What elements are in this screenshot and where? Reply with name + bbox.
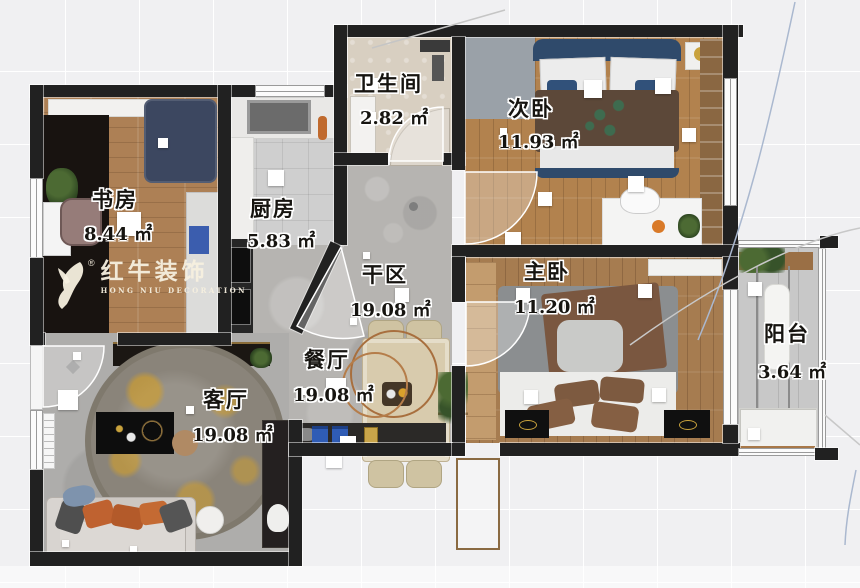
study-daybed [144, 99, 217, 183]
ceiling-light [268, 170, 284, 186]
lower-background-tiles [0, 566, 860, 588]
second-bedroom-area-label: 11.93 ㎡ [498, 128, 579, 154]
dry-area-floor [345, 165, 452, 245]
second-bedroom-desk-orange [652, 220, 665, 233]
master-bed-tray [557, 320, 623, 372]
wall-left-middle [30, 258, 43, 345]
study-blue-box [189, 226, 209, 254]
second-bedroom-desk-plant [678, 214, 700, 238]
ceiling-light [538, 192, 552, 206]
kitchen-figurine [318, 116, 327, 140]
living-area-label: 19.08 ㎡ [192, 421, 273, 447]
study-area-label: 8.44 ㎡ [84, 220, 152, 246]
brand-watermark: ® 红牛装饰 HONG NIU DECORATION [54, 260, 247, 310]
kitchen-area-label: 5.83 ㎡ [247, 227, 315, 253]
wall-entry-corner [452, 443, 465, 456]
wall-balcony-divider-top [723, 257, 738, 289]
master-bedroom-label: 主卧 [524, 256, 570, 286]
master-bedroom-area-label: 11.20 ㎡ [514, 293, 595, 319]
brand-name-en: HONG NIU DECORATION [101, 286, 247, 295]
balcony-sliding-door [723, 289, 738, 425]
wall-master-left-upper [452, 257, 465, 302]
balcony-plants [739, 247, 785, 273]
dining-chair-bottom-left [368, 460, 404, 488]
living-side-table [196, 506, 224, 534]
ceiling-light [652, 388, 666, 402]
living-radiator [43, 413, 55, 469]
living-door-gap [30, 345, 43, 410]
ceiling-light [584, 80, 602, 98]
bathroom-label: 卫生间 [354, 68, 423, 98]
kitchen-sink [247, 100, 311, 134]
second-bedroom-window [724, 78, 737, 206]
ceiling-light [58, 390, 78, 410]
bathroom-fixture [420, 40, 450, 52]
ceiling-light [638, 284, 652, 298]
kitchen-label: 厨房 [250, 193, 296, 223]
kitchen-window [255, 85, 325, 97]
wall-bathroom-bottom-left [334, 153, 388, 165]
ceiling-light [62, 540, 69, 547]
dry-area-area-label: 19.08 ㎡ [350, 296, 431, 322]
balcony-window-top [738, 240, 826, 248]
bull-logo-icon [54, 260, 88, 310]
wall-left-upper [30, 85, 43, 178]
ceiling-light [158, 138, 168, 148]
sideboard-blue-box-1 [312, 426, 328, 443]
wall-balcony-divider-bottom [723, 425, 738, 443]
bathroom-shower-head [432, 55, 444, 81]
ceiling-light [748, 282, 762, 296]
master-bed-pillow-2 [599, 376, 645, 404]
ceiling-light [186, 406, 194, 414]
balcony-area-label: 3.64 ㎡ [758, 358, 826, 384]
wall-balcony-corner-topright [820, 236, 838, 248]
ceiling-light [73, 352, 81, 360]
dry-area-label: 干区 [362, 259, 408, 289]
entry-door-leaf [456, 458, 500, 550]
balcony-window-bottom [738, 448, 818, 456]
balcony-window-right [818, 248, 826, 456]
master-nightstand-handle-left [519, 420, 537, 430]
wall-top-bathroom-bedroom [334, 25, 743, 37]
wall-dining-bottom [289, 443, 452, 456]
living-coffee-table [96, 412, 174, 454]
living-label: 客厅 [203, 384, 249, 414]
ceiling-light [655, 78, 671, 94]
ceiling-light [628, 176, 644, 192]
wall-bathroom-left [334, 25, 347, 245]
hall-floor-dot [409, 202, 418, 211]
study-label: 书房 [92, 184, 138, 214]
wall-living-right-stub [289, 420, 302, 566]
wall-living-bottom [30, 552, 302, 566]
dining-chair-bottom-right [406, 460, 442, 488]
master-wardrobe [466, 262, 496, 440]
ceiling-light [524, 390, 538, 404]
floor-plan: 书房 8.44 ㎡ 厨房 5.83 ㎡ 卫生间 2.82 ㎡ 次卧 11.93 … [0, 0, 860, 588]
master-top-shelf [648, 259, 722, 276]
second-bed-frame-foot [535, 168, 679, 178]
living-console-plant [250, 348, 272, 368]
master-nightstand-handle-right [679, 420, 697, 430]
study-window [30, 178, 43, 258]
bathroom-area-label: 2.82 ㎡ [360, 104, 428, 130]
dining-label: 餐厅 [304, 344, 350, 374]
ceiling-light [682, 128, 696, 142]
brand-name-cn: 红牛装饰 [101, 260, 247, 284]
second-bedroom-label: 次卧 [508, 93, 554, 123]
wall-corridor-upper [452, 37, 465, 170]
dining-area-label: 19.08 ㎡ [293, 381, 374, 407]
living-cabinet-vase [267, 504, 289, 532]
wall-master-bottom [500, 443, 740, 456]
second-bedroom-wardrobe [700, 39, 723, 245]
balcony-label: 阳台 [764, 318, 810, 348]
registered-mark: ® [88, 258, 95, 268]
ceiling-light [363, 252, 370, 259]
wall-bedroom-divider [452, 245, 738, 257]
ceiling-light [748, 428, 760, 440]
living-window [30, 410, 43, 470]
wall-balcony-corner-bottomright [815, 448, 838, 460]
wall-study-bottom-right [118, 333, 231, 345]
